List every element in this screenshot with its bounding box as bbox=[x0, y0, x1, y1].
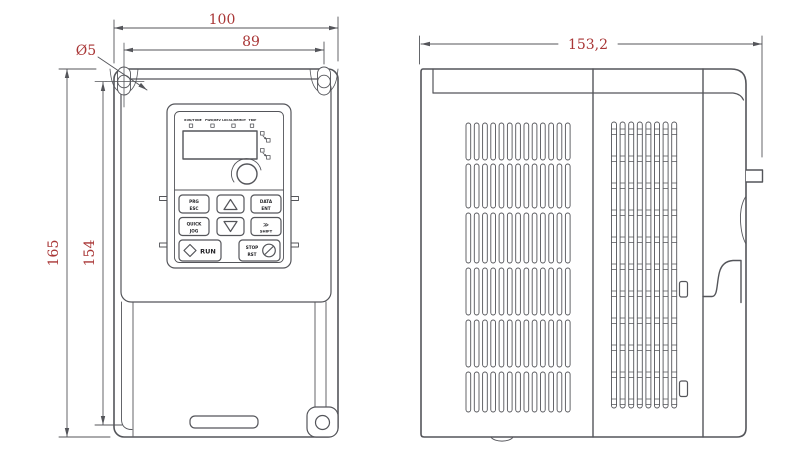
button-prg-esc-label: PRG bbox=[189, 199, 199, 204]
dim-width-100: 100 bbox=[114, 12, 338, 63]
dim-text-hole-span: 89 bbox=[242, 34, 260, 50]
side-tab-right bbox=[746, 170, 763, 182]
dim-arrow bbox=[753, 42, 762, 46]
status-led-label: FWD/REV bbox=[205, 118, 221, 122]
technical-drawing-canvas: RUN/TUNE FWD/REV LOCAL/REMOT TRIP bbox=[0, 0, 800, 450]
button-stop-rst-label2: RST bbox=[247, 252, 256, 257]
button-prg-esc-label2: ESC bbox=[190, 206, 199, 211]
drawing-svg: RUN/TUNE FWD/REV LOCAL/REMOT TRIP bbox=[0, 0, 800, 450]
dim-arrow bbox=[101, 416, 105, 425]
mounting-tab-bottom-right bbox=[307, 407, 338, 437]
side-body-outline bbox=[421, 69, 746, 437]
dim-text-hole-diameter: Ø5 bbox=[76, 43, 96, 59]
dim-arrow bbox=[101, 82, 105, 91]
dim-text-depth: 153,2 bbox=[568, 37, 608, 53]
slot-outline bbox=[318, 67, 331, 95]
dim-arrow bbox=[329, 26, 338, 30]
keypad-bezel bbox=[167, 104, 291, 268]
status-led-label: TRIP bbox=[249, 118, 257, 122]
button-quick-jog-label2: JOG bbox=[189, 229, 199, 234]
front-view: RUN/TUNE FWD/REV LOCAL/REMOT TRIP bbox=[46, 12, 338, 437]
din-clip-lower bbox=[680, 381, 688, 397]
dim-arrow bbox=[315, 48, 324, 52]
button-shift-label: SHIFT bbox=[260, 229, 273, 234]
button-run-label: RUN bbox=[200, 248, 216, 256]
dim-arrow bbox=[114, 26, 123, 30]
button-stop-rst-label: STOP bbox=[246, 245, 259, 250]
side-view: 153,2 bbox=[420, 36, 763, 441]
dim-text-width: 100 bbox=[209, 12, 236, 28]
button-data-ent-label2: ENT bbox=[261, 206, 270, 211]
dim-arrow bbox=[65, 69, 69, 78]
button-data-ent-label: DATA bbox=[260, 199, 273, 204]
dim-arrow bbox=[124, 48, 133, 52]
dim-text-hole-span-v: 154 bbox=[82, 240, 98, 267]
dim-height-165: 165 bbox=[46, 69, 110, 437]
dim-arrow bbox=[65, 428, 69, 437]
dim-arrow bbox=[421, 42, 430, 46]
status-led-label: LOCAL/REMOT bbox=[222, 118, 247, 122]
dim-text-height: 165 bbox=[46, 240, 62, 267]
din-clip-upper bbox=[680, 282, 688, 298]
button-quick-jog-label: QUICK bbox=[187, 222, 203, 227]
status-led-label: RUN/TUNE bbox=[184, 118, 201, 122]
keypad: RUN/TUNE FWD/REV LOCAL/REMOT TRIP bbox=[160, 104, 299, 268]
